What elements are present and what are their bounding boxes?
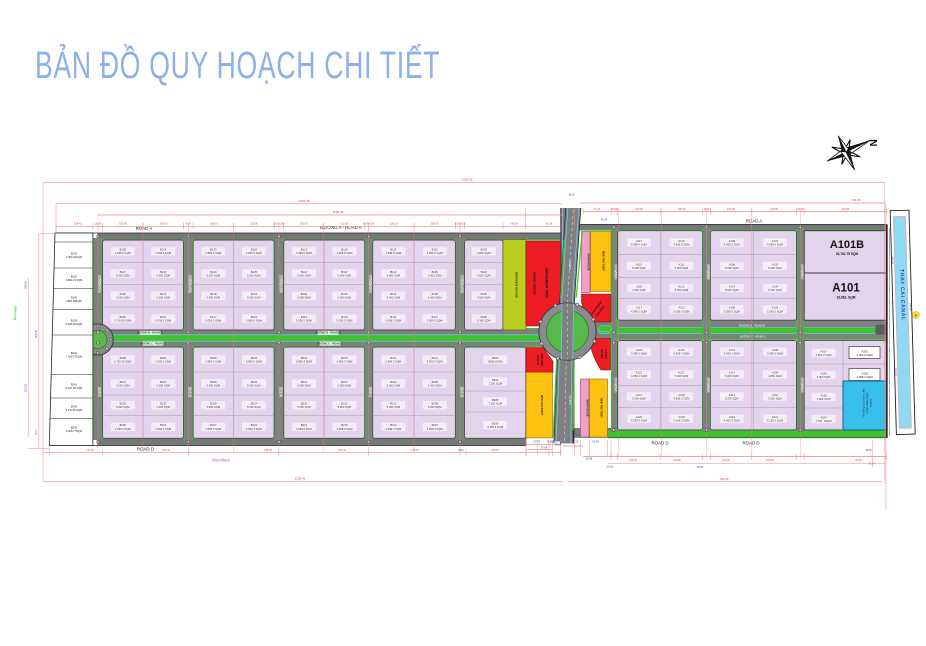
svg-text:754.46: 754.46 [851,198,861,202]
svg-text:A114: A114 [636,239,643,243]
svg-text:5,059.3 SQM: 5,059.3 SQM [631,419,648,423]
svg-text:A116: A116 [636,284,643,288]
svg-text:1226.41: 1226.41 [295,477,306,481]
svg-text:B105: B105 [481,292,488,296]
svg-text:A212: A212 [729,415,736,419]
svg-text:5,959.3 SQM: 5,959.3 SQM [724,352,741,356]
svg-text:B237: B237 [120,380,127,384]
svg-text:B209: B209 [432,380,439,384]
svg-text:100.00: 100.00 [722,458,730,462]
svg-text:5,000 SQM: 5,000 SQM [428,273,442,277]
svg-text:740.32: 740.32 [719,477,729,481]
svg-text:10.00: 10.00 [868,463,875,466]
svg-text:A106: A106 [729,306,736,310]
svg-text:250.03: 250.03 [25,384,28,392]
svg-text:A255: A255 [820,393,827,397]
svg-text:4,959.3 SQM: 4,959.3 SQM [115,427,132,431]
svg-text:ROAD A: ROAD A [136,226,153,231]
svg-text:5,000 SQM: 5,000 SQM [156,383,170,387]
svg-text:B106: B106 [481,315,488,319]
svg-text:4,959.5 SQM: 4,959.5 SQM [115,251,132,255]
svg-text:100.00: 100.00 [770,207,778,211]
svg-text:5,000 SQM: 5,000 SQM [725,266,739,270]
svg-text:2006.85: 2006.85 [462,177,473,181]
svg-text:MINI FACTORY: MINI FACTORY [599,398,603,418]
svg-text:250.00: 250.00 [894,368,897,376]
svg-text:4,959.3 SQM: 4,959.3 SQM [724,419,741,423]
svg-text:218.30: 218.30 [264,448,272,452]
svg-text:A210: A210 [772,393,779,397]
svg-text:100.00: 100.00 [431,222,439,226]
svg-text:5,059.5 SQM: 5,059.5 SQM [205,318,222,322]
svg-text:B227: B227 [210,423,217,427]
svg-text:B236: B236 [120,402,127,406]
svg-text:145.00: 145.00 [510,222,518,226]
svg-text:B231: B231 [160,423,167,427]
svg-text:B206: B206 [492,421,499,425]
svg-text:4,999.5 SQM: 4,999.5 SQM [631,309,648,313]
svg-text:A112: A112 [678,284,685,288]
svg-text:5,000 SQM: 5,000 SQM [725,374,739,378]
svg-text:B240: B240 [71,405,78,409]
svg-text:4,959.3 SQM: 4,959.3 SQM [427,427,444,431]
svg-text:6.00: 6.00 [459,448,465,452]
svg-text:A223: A223 [636,348,643,352]
svg-text:5,000 SQM: 5,000 SQM [768,288,782,292]
svg-text:5,000 SQM: 5,000 SQM [297,273,311,277]
svg-text:B226: B226 [251,356,258,360]
svg-text:5,159.0 SQM: 5,159.0 SQM [767,419,784,423]
svg-text:B123: B123 [251,315,258,319]
svg-text:B125: B125 [251,270,258,274]
svg-text:B103: B103 [481,248,488,252]
svg-text:4,959.5 SQM: 4,959.5 SQM [724,243,741,247]
svg-text:ROAD A: ROAD A [746,219,763,224]
svg-text:B138: B138 [120,248,127,252]
svg-text:A104: A104 [772,284,779,288]
svg-text:6.00 6.00: 6.00 6.00 [455,222,466,226]
svg-text:5,059.5 SQM: 5,059.5 SQM [337,318,354,322]
svg-text:HOTEL: HOTEL [600,349,604,358]
svg-text:A217: A217 [678,371,685,375]
svg-text:5,000 SQM: 5,000 SQM [247,405,261,409]
svg-text:ROAD 4: ROAD 4 [369,387,373,397]
svg-text:5,000 SQM: 5,000 SQM [297,383,311,387]
svg-text:306.76: 306.76 [35,330,38,338]
svg-text:A214: A214 [729,371,736,375]
svg-text:4,959.5 SQM: 4,959.5 SQM [674,243,691,247]
svg-text:5,000 SQM: 5,000 SQM [247,296,261,300]
svg-text:A101B: A101B [830,239,864,251]
svg-text:B238: B238 [120,356,127,360]
svg-text:218.30: 218.30 [411,448,419,452]
svg-text:ROAD D: ROAD D [742,441,759,446]
svg-text:A102: A102 [772,239,779,243]
svg-text:5,000 SQM: 5,000 SQM [675,374,689,378]
svg-text:6.00 6.00: 6.00 6.00 [274,222,285,226]
svg-text:B223: B223 [251,423,258,427]
svg-text:2 STAR: 2 STAR [604,349,608,358]
svg-text:B128: B128 [210,292,217,296]
svg-text:100.00: 100.00 [160,222,168,226]
svg-text:5,000 SQM: 5,000 SQM [116,273,130,277]
svg-text:system): system) [869,399,872,408]
svg-text:5,000 SQM: 5,000 SQM [116,296,130,300]
svg-text:5,141.06 SQM: 5,141.06 SQM [66,408,83,412]
svg-text:5,000 SQM: 5,000 SQM [632,396,646,400]
svg-text:16.00: 16.00 [797,207,804,211]
svg-text:5,206.77SQM: 5,206.77SQM [66,429,82,433]
svg-text:B203: B203 [492,356,499,360]
svg-text:B230: B230 [210,356,217,360]
svg-text:A301: A301 [862,349,869,353]
svg-text:5,000 SQM: 5,000 SQM [387,405,401,409]
svg-text:7,797 .0SQM: 7,797 .0SQM [816,419,833,423]
svg-text:B241: B241 [71,383,78,387]
svg-text:5,000 SQM: 5,000 SQM [632,266,646,270]
svg-text:5,000 SQM: 5,000 SQM [297,405,311,409]
svg-text:5,959.3 SQM: 5,959.3 SQM [385,359,402,363]
svg-text:B142: B142 [71,251,78,255]
svg-text:5,959.0 SQM: 5,959.0 SQM [631,243,648,247]
svg-text:A216: A216 [678,348,685,352]
svg-text:A107: A107 [729,284,736,288]
svg-text:4,959.5 SQM: 4,959.5 SQM [246,251,263,255]
svg-text:4,959.3 SQM: 4,959.3 SQM [246,427,263,431]
svg-text:5,059.5 SQM: 5,059.5 SQM [385,318,402,322]
svg-text:A103: A103 [772,262,779,266]
svg-text:ROAD 5: ROAD 5 [460,387,464,397]
svg-text:38.00: 38.00 [555,444,562,447]
svg-text:76.12: 76.12 [594,207,601,211]
svg-text:ROAD 3: ROAD 3 [279,387,283,397]
svg-text:A113: A113 [678,306,685,310]
svg-text:B126: B126 [251,248,258,252]
svg-text:108.42: 108.42 [74,222,82,226]
svg-text:B214: B214 [390,423,397,427]
svg-text:SHOP HOUSE: SHOP HOUSE [585,399,589,417]
svg-text:100.00: 100.00 [727,207,735,211]
svg-text:4,500 SQM: 4,500 SQM [477,273,491,277]
svg-text:4,981.19 SQM: 4,981.19 SQM [66,278,83,282]
svg-text:4,000 SQM: 4,000 SQM [477,251,491,255]
svg-text:B127: B127 [210,315,217,319]
svg-text:5,000 SQM: 5,000 SQM [338,383,352,387]
svg-text:1233.68: 1233.68 [299,199,310,203]
svg-text:A302: A302 [862,371,869,375]
svg-text:A218: A218 [678,393,685,397]
svg-text:OFFICE: OFFICE [536,355,540,365]
svg-text:A101: A101 [832,283,860,295]
svg-text:4,905.2 SQM: 4,905.2 SQM [857,375,874,379]
svg-text:B208: B208 [432,402,439,406]
svg-text:A213: A213 [729,393,736,397]
svg-text:5,000 SQM: 5,000 SQM [116,405,130,409]
svg-text:100.00: 100.00 [629,458,637,462]
svg-text:B107: B107 [432,315,439,319]
svg-text:A220: A220 [636,415,643,419]
svg-text:131.90: 131.90 [86,448,94,452]
svg-text:9999.0SQM: 9999.0SQM [488,359,503,363]
svg-text:B219: B219 [301,423,308,427]
svg-text:256.03: 256.03 [25,281,28,289]
svg-text:5,959.3 SQM: 5,959.3 SQM [337,359,354,363]
svg-text:4,484.81SQM: 4,484.81SQM [66,255,82,259]
svg-text:5,000 SQM: 5,000 SQM [387,383,401,387]
svg-text:B235: B235 [120,423,127,427]
svg-text:4,959.5 SQM: 4,959.5 SQM [155,251,172,255]
svg-text:5,000 SQM: 5,000 SQM [247,273,261,277]
svg-text:5,959.3 SQM: 5,959.3 SQM [246,359,263,363]
svg-text:4,959.5 SQM: 4,959.5 SQM [296,251,313,255]
svg-text:7,168.73SQM: 7,168.73SQM [66,355,82,359]
svg-text:5,059.5 SQM: 5,059.5 SQM [246,318,263,322]
svg-text:A221: A221 [636,393,643,397]
svg-text:5,000 SQM: 5,000 SQM [207,296,221,300]
svg-text:5,959.3 SQM: 5,959.3 SQM [427,359,444,363]
svg-text:A110: A110 [678,239,685,243]
svg-text:A219: A219 [678,415,685,419]
svg-text:100.00: 100.00 [210,222,218,226]
svg-text:4,959.5 SQM: 4,959.5 SQM [427,251,444,255]
svg-text:A204: A204 [820,415,827,419]
svg-text:B120: B120 [301,292,308,296]
svg-text:ĐT.825: ĐT.825 [568,396,572,405]
svg-text:Boundary: Boundary [212,458,231,463]
svg-text:ROAD 2: ROAD 2 [188,387,192,397]
svg-text:5,000 SQM: 5,000 SQM [725,396,739,400]
svg-text:B135: B135 [120,315,127,319]
svg-text:5,000 SQM: 5,000 SQM [675,288,689,292]
svg-text:B229: B229 [210,380,217,384]
svg-text:6.00 6.00: 6.00 6.00 [363,222,374,226]
svg-text:4,959.5 SQM: 4,959.5 SQM [385,251,402,255]
svg-text:B116: B116 [341,292,348,296]
svg-text:B232: B232 [160,402,167,406]
svg-text:A208: A208 [772,348,779,352]
svg-text:B207: B207 [432,423,439,427]
svg-text:100.00: 100.00 [250,222,258,226]
svg-text:5,059.5 SQM: 5,059.5 SQM [767,309,784,313]
svg-text:1138.48: 1138.48 [333,210,344,214]
svg-text:A109: A109 [729,239,736,243]
svg-text:5,059.5 SQM: 5,059.5 SQM [296,318,313,322]
svg-text:B213: B213 [390,402,397,406]
svg-text:B210: B210 [432,356,439,360]
svg-text:B134: B134 [160,248,167,252]
svg-text:18.30: 18.30 [607,465,614,468]
svg-text:4,850 SQM: 4,850 SQM [768,374,782,378]
svg-text:5,959.3 SQM: 5,959.3 SQM [631,352,648,356]
svg-text:5,000 SQM: 5,000 SQM [156,273,170,277]
svg-text:B225: B225 [251,380,258,384]
svg-text:5,000 SQM: 5,000 SQM [297,296,311,300]
svg-text:MINI FACTORY: MINI FACTORY [601,251,605,271]
svg-text:100.00: 100.00 [635,207,643,211]
svg-text:36.00: 36.00 [568,193,575,197]
svg-text:B222: B222 [301,356,308,360]
svg-text:5,000 SQM: 5,000 SQM [675,266,689,270]
svg-text:5,000 SQM: 5,000 SQM [428,405,442,409]
svg-text:TRADE CENTER: TRADE CENTER [533,271,537,295]
svg-text:5,722.26 SQM: 5,722.26 SQM [114,359,132,363]
svg-text:4,800 SQM: 4,800 SQM [817,397,831,401]
svg-text:100.00: 100.00 [766,458,774,462]
svg-text:A206: A206 [820,371,827,375]
svg-text:B140: B140 [71,295,78,299]
svg-text:SHOP HOUSE: SHOP HOUSE [586,253,590,271]
svg-text:37.13: 37.13 [572,440,579,443]
svg-text:Hệ thống xử lý nước thải: Hệ thống xử lý nước thải [862,388,866,417]
svg-text:5,059.0 SQM: 5,059.0 SQM [674,309,691,313]
svg-text:5,000 SQM: 5,000 SQM [207,405,221,409]
svg-text:6,005.08 SQM: 6,005.08 SQM [66,322,83,326]
svg-text:5,959.3 SQM: 5,959.3 SQM [296,359,313,363]
svg-text:B224: B224 [251,402,258,406]
svg-text:5,059.5 SQM: 5,059.5 SQM [155,318,172,322]
svg-text:B204: B204 [492,378,499,382]
svg-text:5,000 SQM: 5,000 SQM [428,296,442,300]
svg-text:B215: B215 [341,423,348,427]
svg-text:13.88: 13.88 [546,440,553,443]
svg-text:4,000 SQM: 4,000 SQM [632,288,646,292]
svg-text:7,250 SQM: 7,250 SQM [488,401,502,405]
svg-text:4,959.3 SQM: 4,959.3 SQM [296,427,313,431]
svg-text:B139: B139 [71,319,78,323]
svg-text:18.30: 18.30 [697,466,704,469]
svg-text:A105: A105 [772,306,779,310]
svg-text:B117: B117 [341,270,348,274]
svg-text:A209: A209 [772,371,779,375]
svg-text:B108: B108 [432,292,439,296]
svg-text:B217: B217 [341,380,348,384]
svg-text:100.00: 100.00 [300,222,308,226]
svg-text:203.92: 203.92 [842,207,850,211]
svg-text:B205: B205 [492,398,499,402]
svg-text:B112: B112 [390,292,397,296]
svg-text:4,962.8 SQM: 4,962.8 SQM [857,353,874,357]
svg-text:A117: A117 [636,306,643,310]
svg-text:A222: A222 [636,371,643,375]
svg-text:B119: B119 [301,315,308,319]
svg-text:5,000 SQM: 5,000 SQM [387,273,401,277]
svg-text:A215: A215 [729,348,736,352]
svg-text:5,000 SQM: 5,000 SQM [338,273,352,277]
svg-text:A115: A115 [636,262,643,266]
svg-text:A211: A211 [772,415,779,419]
svg-text:7,250 SQM: 7,250 SQM [488,381,502,385]
svg-text:5,037.38 SQM: 5,037.38 SQM [66,386,83,390]
svg-text:94.05: 94.05 [855,458,862,462]
svg-text:ROAD D: ROAD D [137,447,154,452]
svg-text:ĐƯỜNG A - ROAD A: ĐƯỜNG A - ROAD A [320,225,361,230]
svg-text:6.00: 6.00 [186,222,192,226]
svg-text:ROAD D: ROAD D [651,441,668,446]
svg-text:B113: B113 [390,270,397,274]
svg-text:WORKER HOUSE: WORKER HOUSE [514,272,518,298]
svg-text:5,000 SQM: 5,000 SQM [817,375,831,379]
svg-text:5,000 SQM: 5,000 SQM [207,273,221,277]
svg-text:B242: B242 [71,351,78,355]
svg-text:4,959.5 SQM: 4,959.5 SQM [205,251,222,255]
svg-text:B111: B111 [390,315,396,319]
svg-text:5,000 SQM: 5,000 SQM [156,405,170,409]
svg-text:358.06: 358.06 [909,303,912,311]
svg-text:B115: B115 [341,315,348,319]
svg-text:B133: B133 [160,270,167,274]
svg-text:B212: B212 [390,380,397,384]
svg-text:4,959.3 SQM: 4,959.3 SQM [631,374,648,378]
svg-text:87.88: 87.88 [541,446,548,449]
svg-text:219.30: 219.30 [162,448,170,452]
svg-text:90.36: 90.36 [586,457,593,460]
svg-text:5,000 SQM: 5,000 SQM [428,383,442,387]
svg-text:4,959.5 SQM: 4,959.5 SQM [767,243,784,247]
svg-text:5,000 SQM: 5,000 SQM [725,288,739,292]
svg-text:5,000 SQM: 5,000 SQM [768,266,782,270]
svg-text:5,719.65 SQM: 5,719.65 SQM [114,318,132,322]
svg-text:B234: B234 [160,356,167,360]
svg-text:4,959.0 SQM: 4,959.0 SQM [816,353,833,357]
svg-text:5,000 SQM: 5,000 SQM [207,383,221,387]
svg-text:B221: B221 [301,380,308,384]
svg-text:4987.09SQM: 4987.09SQM [66,299,81,303]
svg-text:5,360 SQM: 5,360 SQM [477,318,491,322]
svg-text:MINI FACTORY: MINI FACTORY [540,395,544,416]
svg-text:B124: B124 [251,292,258,296]
svg-text:4,959.3 SQM: 4,959.3 SQM [155,427,172,431]
svg-text:B118: B118 [341,248,348,252]
svg-text:B233: B233 [160,380,167,384]
svg-text:5,000 SQM: 5,000 SQM [247,383,261,387]
svg-text:5,000 SQM: 5,000 SQM [768,396,782,400]
svg-text:32,861. SQM: 32,861. SQM [837,296,856,300]
svg-text:B110: B110 [432,248,439,252]
svg-text:4,959.3 SQM: 4,959.3 SQM [674,396,691,400]
svg-text:4,959.3 SQM: 4,959.3 SQM [205,427,222,431]
svg-text:N: N [867,139,878,146]
svg-text:B141: B141 [71,275,78,279]
svg-text:B239: B239 [71,425,78,429]
svg-text:100.00: 100.00 [119,222,127,226]
svg-text:100.00: 100.00 [678,207,686,211]
svg-text:57.76: 57.76 [534,440,541,443]
svg-text:B129: B129 [210,270,217,274]
svg-text:B109: B109 [432,270,439,274]
svg-text:216.30: 216.30 [338,448,346,452]
svg-text:A207: A207 [820,349,827,353]
svg-text:A111: A111 [678,262,684,266]
svg-text:B121: B121 [301,270,308,274]
svg-text:B228: B228 [210,402,217,406]
svg-text:B122: B122 [301,248,308,252]
svg-text:100.00: 100.00 [340,222,348,226]
svg-text:5,000 SQM: 5,000 SQM [116,383,130,387]
svg-text:B216: B216 [341,402,348,406]
svg-text:92.36: 92.36 [546,222,553,226]
svg-text:16.17: 16.17 [36,428,38,434]
svg-text:5,059.5 SQM: 5,059.5 SQM [724,309,741,313]
svg-text:100.00: 100.00 [673,458,681,462]
svg-text:4,500 SQM: 4,500 SQM [477,296,491,300]
svg-text:5,000 SQM: 5,000 SQM [338,296,352,300]
svg-text:B130: B130 [210,248,217,252]
svg-text:5,000 SQM: 5,000 SQM [156,296,170,300]
svg-text:B211: B211 [390,356,397,360]
svg-text:ĐT.825: ĐT.825 [568,261,572,270]
svg-text:4,959.5 SQM: 4,959.5 SQM [337,251,354,255]
svg-text:B220: B220 [301,402,308,406]
